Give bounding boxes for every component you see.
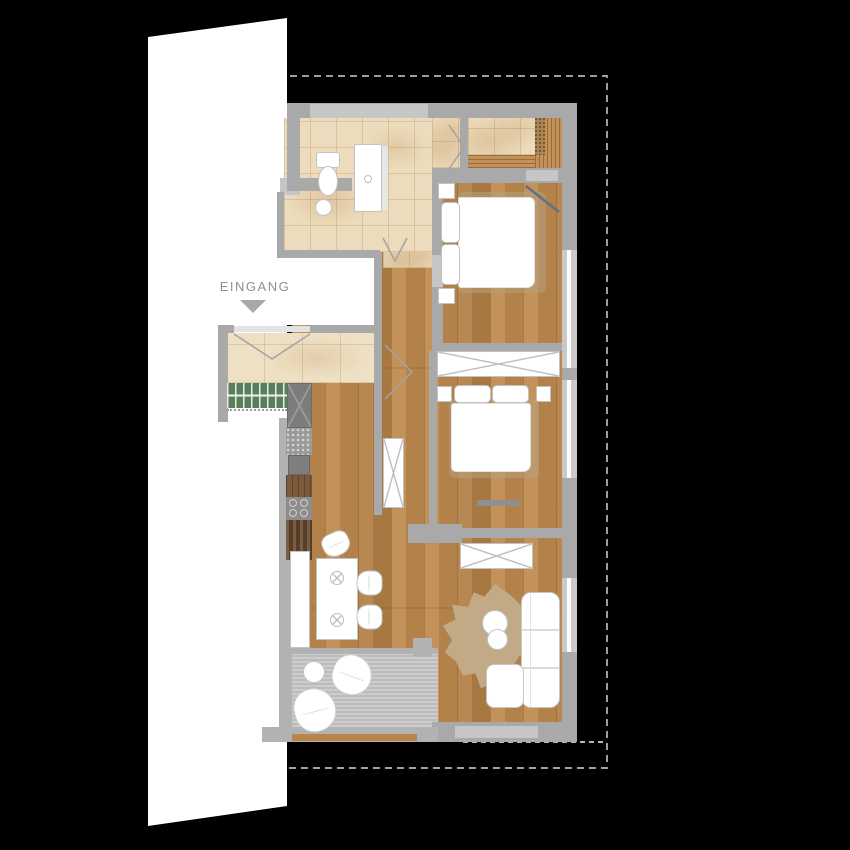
floor-plan-canvas: EINGANG (0, 0, 850, 850)
bathroom-door-swing (383, 238, 407, 261)
closet-door-swing (449, 125, 464, 169)
hallway-door-swing (385, 345, 412, 399)
entrance-door-swing (234, 334, 310, 359)
door-swing-layer (0, 0, 850, 850)
bedroom1-door-leaf (526, 186, 559, 212)
